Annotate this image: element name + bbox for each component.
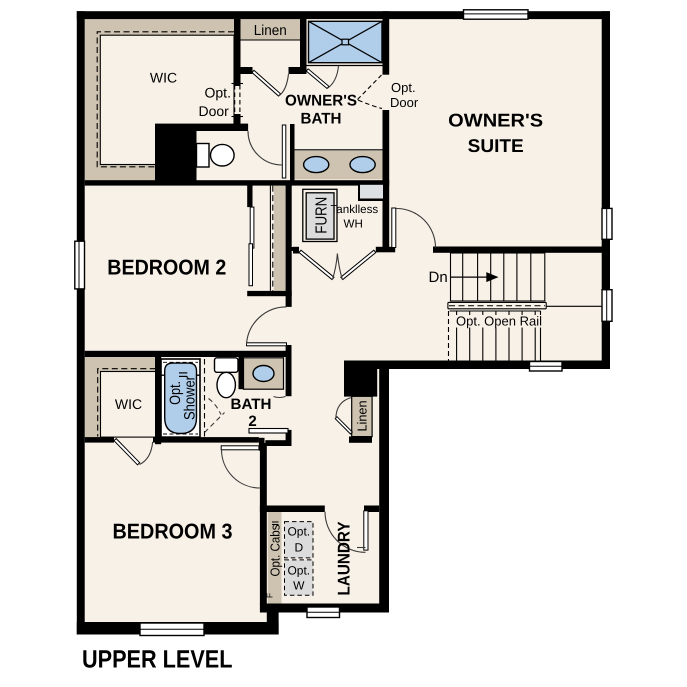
svg-text:BATH: BATH — [301, 111, 342, 128]
svg-text:Opt.: Opt. — [287, 525, 310, 539]
svg-text:BEDROOM 3: BEDROOM 3 — [113, 520, 233, 544]
svg-text:Opt.: Opt. — [391, 80, 416, 95]
svg-text:F: F — [265, 593, 275, 598]
svg-text:2: 2 — [248, 413, 256, 430]
svg-text:Tanklless: Tanklless — [331, 203, 379, 216]
svg-text:LAUNDRY: LAUNDRY — [334, 521, 353, 596]
svg-text:WH: WH — [344, 218, 363, 231]
svg-text:BEDROOM 2: BEDROOM 2 — [107, 256, 226, 280]
svg-text:OWNER'S: OWNER'S — [285, 93, 357, 110]
svg-text:BATH: BATH — [231, 396, 272, 413]
svg-text:FURN: FURN — [314, 197, 331, 234]
svg-text:Linen: Linen — [254, 23, 287, 39]
svg-text:Shower: Shower — [182, 376, 199, 420]
svg-text:Opt. Open Rail: Opt. Open Rail — [456, 314, 542, 329]
svg-text:Opt.: Opt. — [205, 85, 231, 101]
svg-text:W: W — [293, 579, 305, 593]
svg-text:OWNER'S: OWNER'S — [448, 110, 543, 131]
svg-text:WIC: WIC — [115, 396, 142, 412]
svg-text:SUITE: SUITE — [468, 135, 524, 156]
svg-text:Opt. Cabs: Opt. Cabs — [268, 524, 283, 576]
svg-text:Linen: Linen — [355, 401, 370, 432]
svg-text:Opt.: Opt. — [287, 564, 310, 578]
svg-text:UPPER LEVEL: UPPER LEVEL — [82, 646, 233, 674]
svg-text:WIC: WIC — [150, 70, 177, 86]
svg-text:Dn: Dn — [429, 269, 448, 286]
svg-text:Door: Door — [199, 103, 230, 119]
svg-text:Door: Door — [390, 95, 419, 110]
svg-text:D: D — [294, 541, 303, 555]
